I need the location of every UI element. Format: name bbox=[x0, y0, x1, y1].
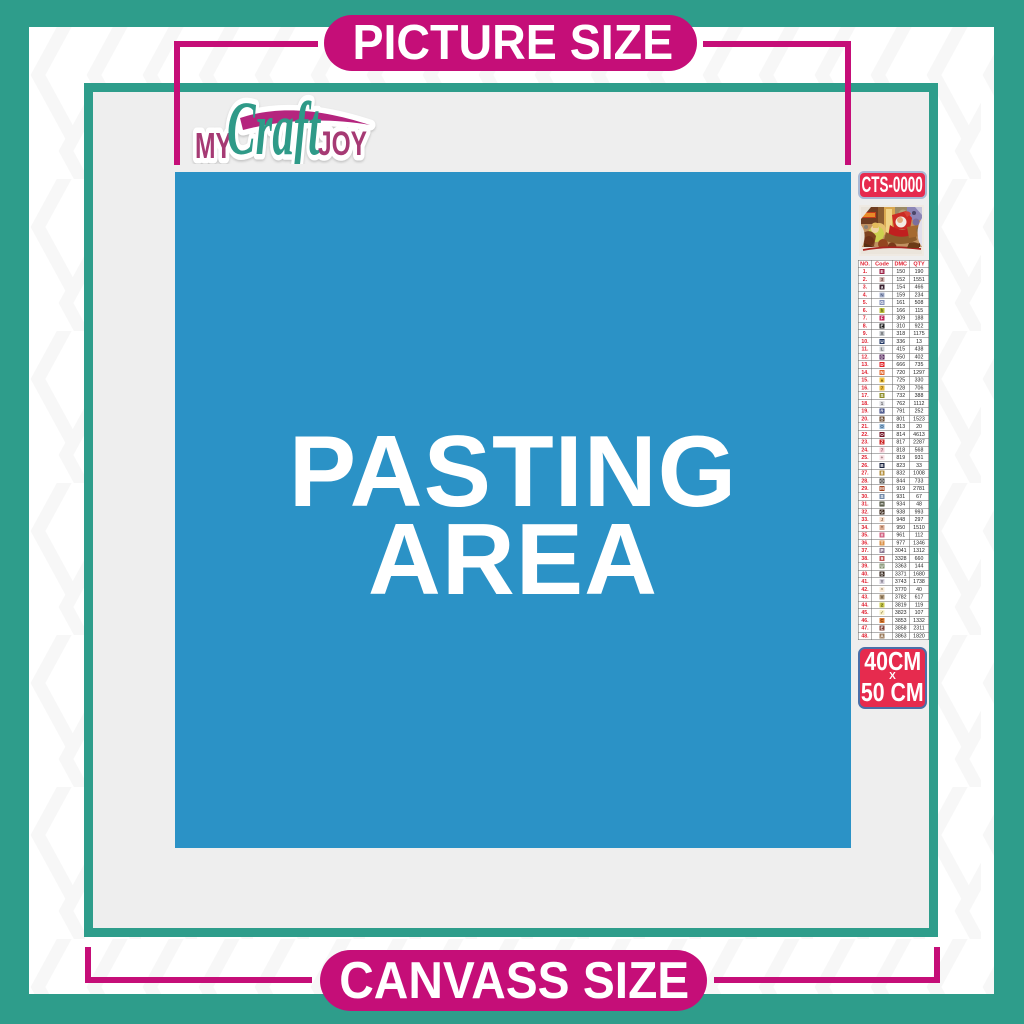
svg-text:JOY: JOY bbox=[318, 125, 367, 163]
svg-text:Craft: Craft bbox=[227, 92, 322, 164]
